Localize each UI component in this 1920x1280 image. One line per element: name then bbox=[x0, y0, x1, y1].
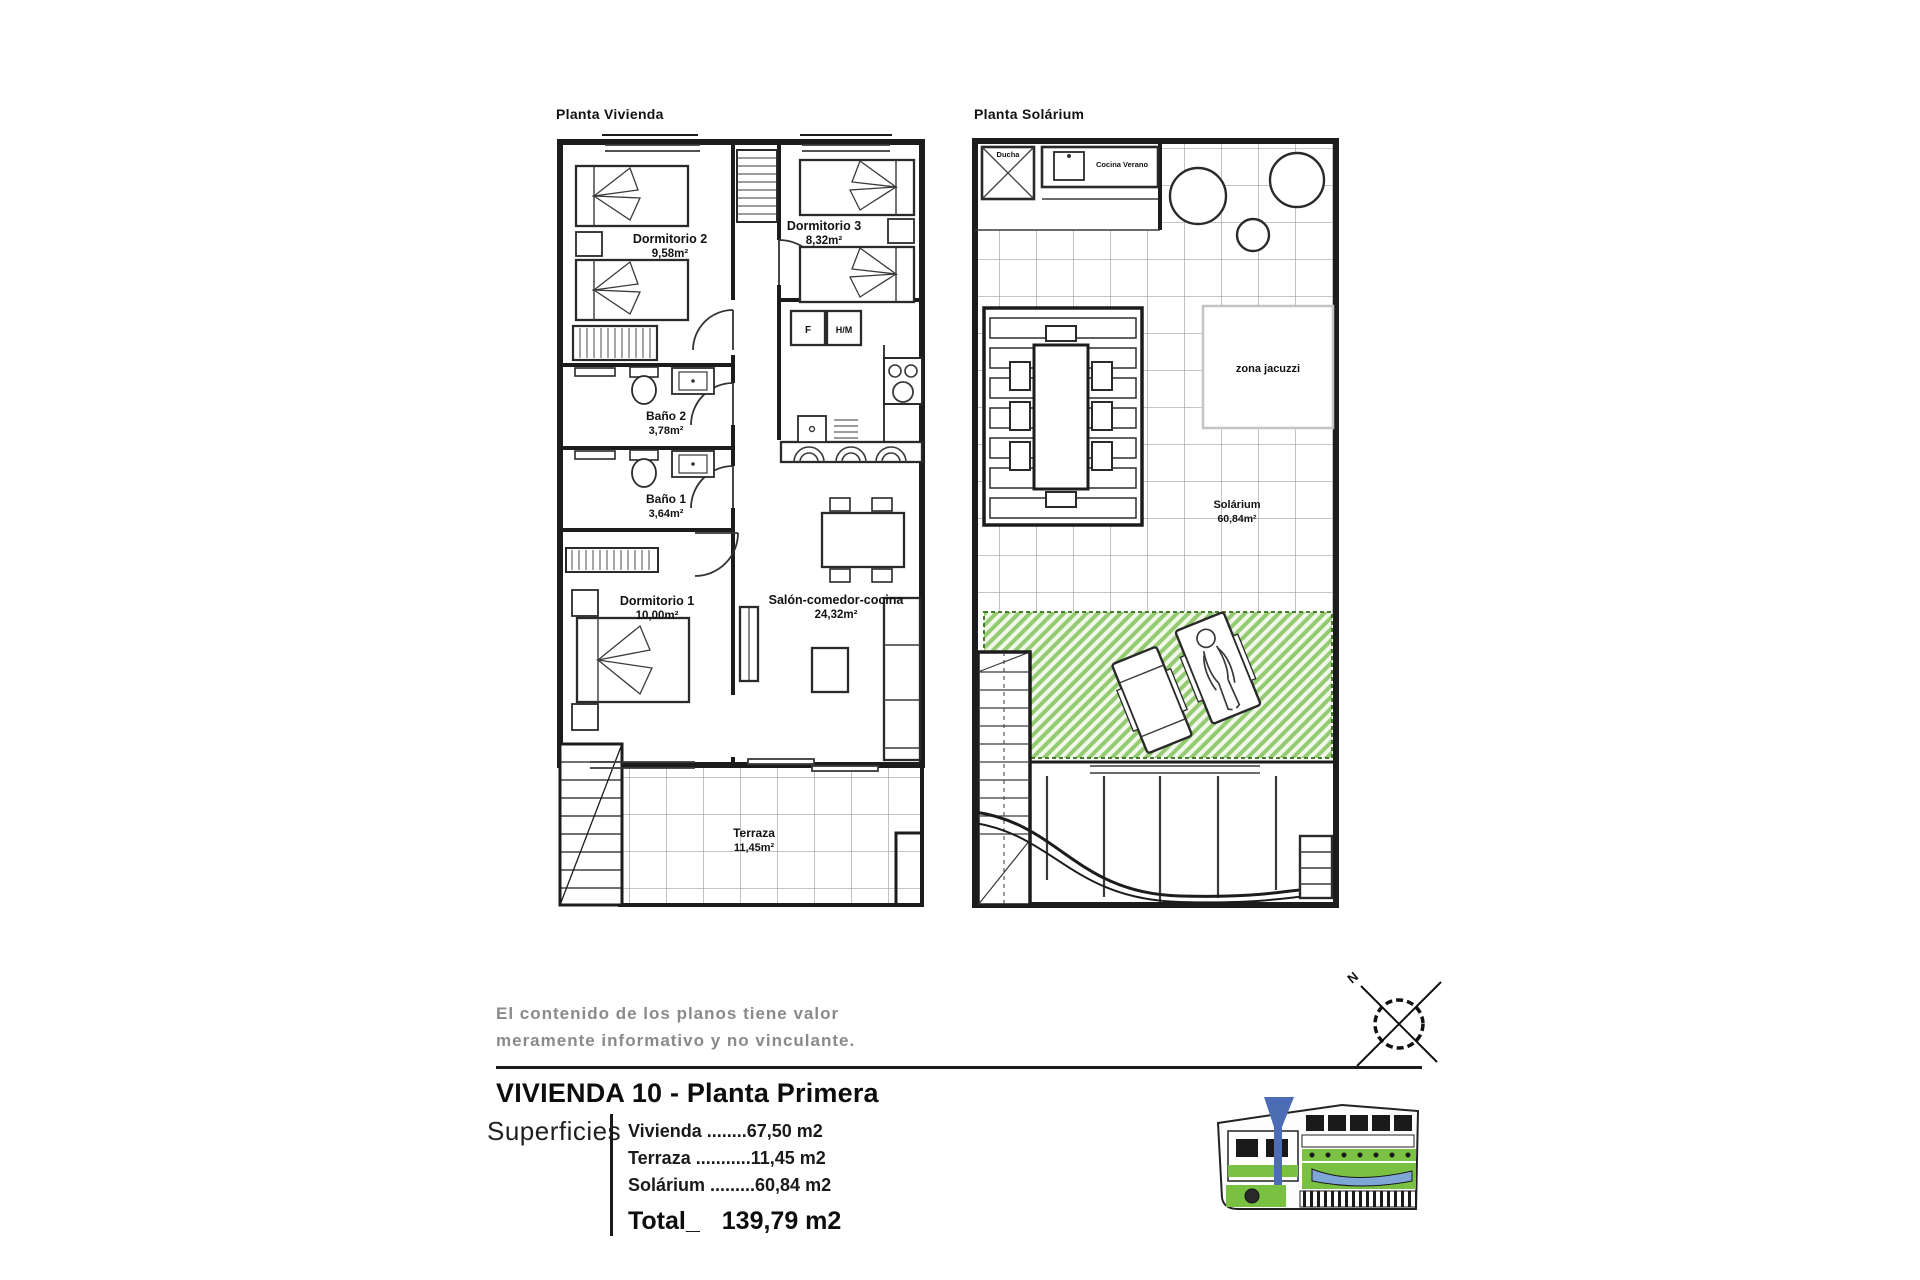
label-solarium-name: Solárium bbox=[1213, 499, 1260, 511]
label-dormitorio3-name: Dormitorio 3 bbox=[787, 219, 861, 233]
title-rule bbox=[496, 1066, 1422, 1069]
label-solarium-area: 60,84m² bbox=[1217, 513, 1257, 525]
superficies-label: Superficies bbox=[487, 1116, 621, 1147]
disclaimer-line1: El contenido de los planos tiene valor bbox=[496, 1000, 855, 1027]
floorplan-sheet: Planta Vivienda Planta Solárium bbox=[0, 0, 1920, 1280]
label-bano1-area: 3,64m² bbox=[649, 508, 684, 520]
disclaimer-line2: meramente informativo y no vinculante. bbox=[496, 1027, 855, 1054]
label-bano1-name: Baño 1 bbox=[646, 492, 686, 506]
floorplan-vivienda-drawing: Dormitorio 2 9,58m² Dormitorio 3 8,32m² … bbox=[545, 95, 940, 930]
label-dormitorio2-area: 9,58m² bbox=[652, 248, 689, 260]
label-ducha: Ducha bbox=[997, 150, 1021, 159]
compass-north-label: N bbox=[1344, 969, 1361, 987]
disclaimer: El contenido de los planos tiene valor m… bbox=[496, 1000, 855, 1054]
surface-row-terraza: Terraza ...........11,45 m2 bbox=[628, 1145, 841, 1172]
site-plan-minimap bbox=[1212, 1093, 1427, 1228]
bano1-fixtures bbox=[575, 450, 714, 487]
floorplan-solarium-drawing: Ducha Cocina Verano zona jacuzzi bbox=[955, 95, 1355, 930]
bano2-fixtures bbox=[575, 367, 714, 404]
sheet-title: VIVIENDA 10 - Planta Primera bbox=[496, 1078, 879, 1109]
salon-furniture bbox=[740, 498, 920, 760]
label-terraza-area: 11,45m² bbox=[734, 842, 775, 854]
dormitorio1-bed bbox=[566, 548, 689, 730]
surface-total-row: Total_139,79 m2 bbox=[628, 1207, 841, 1236]
label-dormitorio1-area: 10,00m² bbox=[636, 610, 679, 622]
label-dormitorio3-area: 8,32m² bbox=[806, 235, 843, 247]
label-dormitorio2-name: Dormitorio 2 bbox=[633, 232, 707, 246]
label-zona-jacuzzi: zona jacuzzi bbox=[1236, 363, 1300, 375]
label-fridge: F bbox=[805, 325, 811, 336]
surface-row-solarium: Solárium .........60,84 m2 bbox=[628, 1172, 841, 1199]
label-terraza-name: Terraza bbox=[733, 826, 775, 840]
superficies-divider bbox=[610, 1114, 613, 1236]
interior-stair bbox=[978, 652, 1030, 905]
surface-row-vivienda: Vivienda ........67,50 m2 bbox=[628, 1118, 841, 1145]
label-bano2-area: 3,78m² bbox=[649, 425, 684, 437]
total-label: Total_ bbox=[628, 1207, 700, 1235]
site-pool bbox=[1302, 1163, 1416, 1189]
total-value: 139,79 m2 bbox=[722, 1207, 842, 1235]
dormitorio2-beds bbox=[573, 166, 688, 360]
label-bano2-name: Baño 2 bbox=[646, 409, 686, 423]
label-washer: H/M bbox=[836, 325, 853, 335]
corridor-closet bbox=[737, 150, 777, 222]
label-cocina-verano: Cocina Verano bbox=[1096, 160, 1149, 169]
pergola-dining bbox=[984, 308, 1142, 525]
label-salon-name: Salón-comedor-cocina bbox=[769, 593, 905, 607]
compass-icon: N bbox=[1342, 962, 1452, 1077]
label-salon-area: 24,32m² bbox=[815, 609, 858, 621]
surface-table: Vivienda ........67,50 m2 Terraza ......… bbox=[628, 1118, 841, 1236]
label-dormitorio1-name: Dormitorio 1 bbox=[620, 594, 694, 608]
